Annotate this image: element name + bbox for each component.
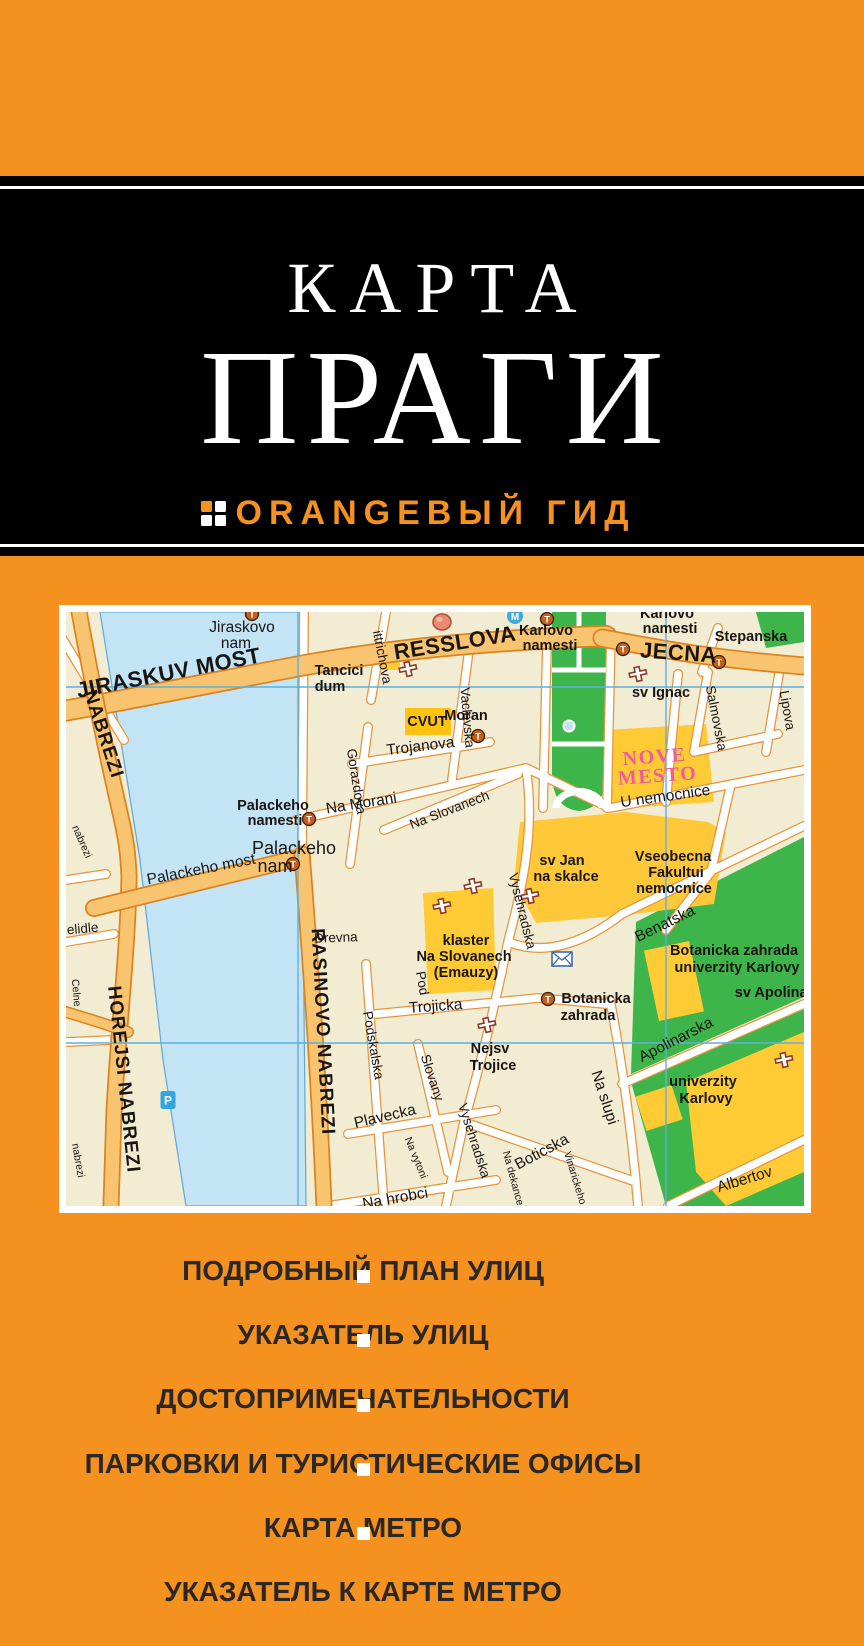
tram-icon: T <box>617 643 630 656</box>
map-label: Drevna <box>314 929 359 946</box>
map-label: Palackeho <box>237 798 309 814</box>
orange-guide-logo-icon <box>201 501 226 526</box>
brand-name: ORANGEВЫЙ ГИД <box>236 494 636 533</box>
map-label: sv Ignac <box>632 685 690 701</box>
map-label: univerzity <box>669 1074 737 1090</box>
map-label: nam <box>221 635 251 652</box>
brand-row: ORANGEВЫЙ ГИД <box>0 494 864 533</box>
tram-icon: T <box>303 813 316 826</box>
map-label: (Emauzy) <box>434 965 499 981</box>
envelope-icon <box>552 952 572 966</box>
map-label: Tancici <box>315 663 364 679</box>
separator-square <box>357 1334 370 1347</box>
svg-text:T: T <box>306 815 312 826</box>
map-label: Celne <box>69 979 83 1008</box>
feature-item: УКАЗАТЕЛЬ УЛИЦ <box>0 1321 726 1349</box>
svg-text:T: T <box>716 658 722 669</box>
map-label: Botanicka <box>561 991 631 1007</box>
feature-item: КАРТА МЕТРО <box>0 1514 726 1542</box>
map-label: Karlovo <box>519 623 573 639</box>
map-label: sv Apolinar <box>735 985 804 1001</box>
parking-icon: P <box>161 1091 176 1109</box>
map-label: dum <box>315 679 346 695</box>
map-label: Fakultui <box>648 865 704 881</box>
band-top-rule <box>0 186 864 189</box>
band-bottom-rule <box>0 544 864 547</box>
map-label: zahrada <box>561 1008 617 1024</box>
feature-item: УКАЗАТЕЛЬ К КАРТЕ МЕТРО <box>0 1578 726 1606</box>
map-label: nemocnice <box>636 881 712 897</box>
map-label: CVUT <box>407 714 447 730</box>
separator-square <box>357 1527 370 1540</box>
map-label: univerzity Karlovy <box>675 960 800 976</box>
svg-text:T: T <box>545 995 551 1006</box>
svg-text:T: T <box>620 645 626 656</box>
map-label: Karlovy <box>679 1091 732 1107</box>
feature-item: ДОСТОПРИМЕЧАТЕЛЬНОСТИ <box>0 1385 726 1413</box>
separator-square <box>357 1270 370 1283</box>
map-label: namesti <box>643 621 698 637</box>
map-label: elidle <box>66 920 99 938</box>
tram-icon: T <box>542 993 555 1006</box>
map-label: Palackeho <box>252 838 336 858</box>
map-label: Stepanska <box>715 629 788 645</box>
feature-item: ПАРКОВКИ И ТУРИСТИЧЕСКИЕ ОФИСЫ <box>0 1450 726 1478</box>
map-label: Jiraskovo <box>209 619 274 636</box>
map-label: Na Slovanech <box>416 949 511 965</box>
map-label: Moran <box>444 708 488 724</box>
map-label: na skalce <box>533 869 598 885</box>
separator-square <box>357 1399 370 1412</box>
map-label: sv Jan <box>539 853 584 869</box>
map-label: namesti <box>248 813 303 829</box>
cover-title-line2: ПРАГИ <box>0 330 864 466</box>
book-cover: { "cover": { "title_line1": "КАРТА", "ti… <box>0 0 864 1646</box>
map-label: klaster <box>443 933 490 949</box>
map-label: Vseobecna <box>635 849 712 865</box>
map-label: nam <box>257 856 292 876</box>
feature-item: ПОДРОБНЫЙ ПЛАН УЛИЦ <box>0 1257 726 1285</box>
separator-square <box>357 1463 370 1476</box>
map-label: Trojice <box>470 1058 517 1074</box>
prague-map: MTTTTTTTTP JIRASKUV MOSTRESSLOVAJECNANAB… <box>66 612 804 1206</box>
map-label: Nejsv <box>471 1041 510 1057</box>
map-panel: MTTTTTTTTP JIRASKUV MOSTRESSLOVAJECNANAB… <box>59 605 811 1213</box>
cover-title-line1: КАРТА <box>0 252 864 324</box>
map-label: Botanicka zahrada <box>670 943 799 959</box>
dome-icon <box>433 614 451 630</box>
svg-text:P: P <box>164 1094 172 1108</box>
park-pond <box>564 721 575 732</box>
map-label: namesti <box>523 638 578 654</box>
